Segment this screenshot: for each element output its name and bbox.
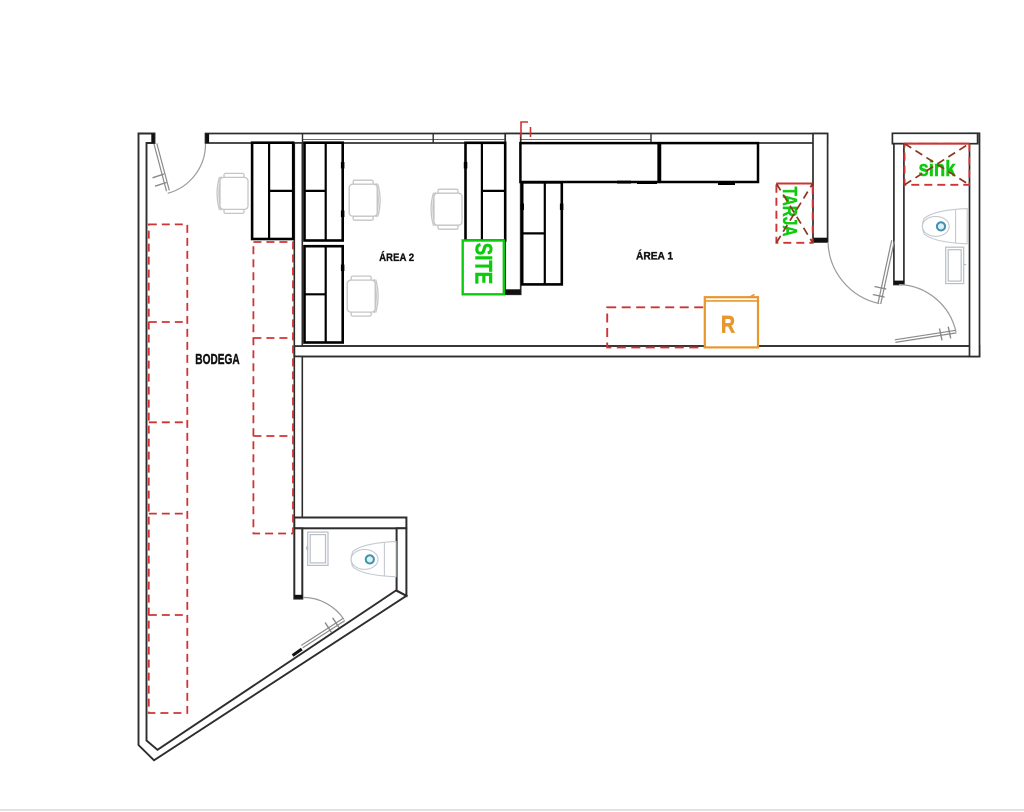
svg-text:TARJA: TARJA (778, 187, 800, 237)
svg-text:R: R (721, 312, 735, 339)
svg-text:BODEGA: BODEGA (195, 352, 240, 368)
svg-text:SITE: SITE (470, 243, 497, 285)
svg-text:sink: sink (919, 156, 957, 181)
svg-text:ÁREA 2: ÁREA 2 (379, 251, 414, 264)
svg-text:ÁREA 1: ÁREA 1 (636, 250, 673, 263)
